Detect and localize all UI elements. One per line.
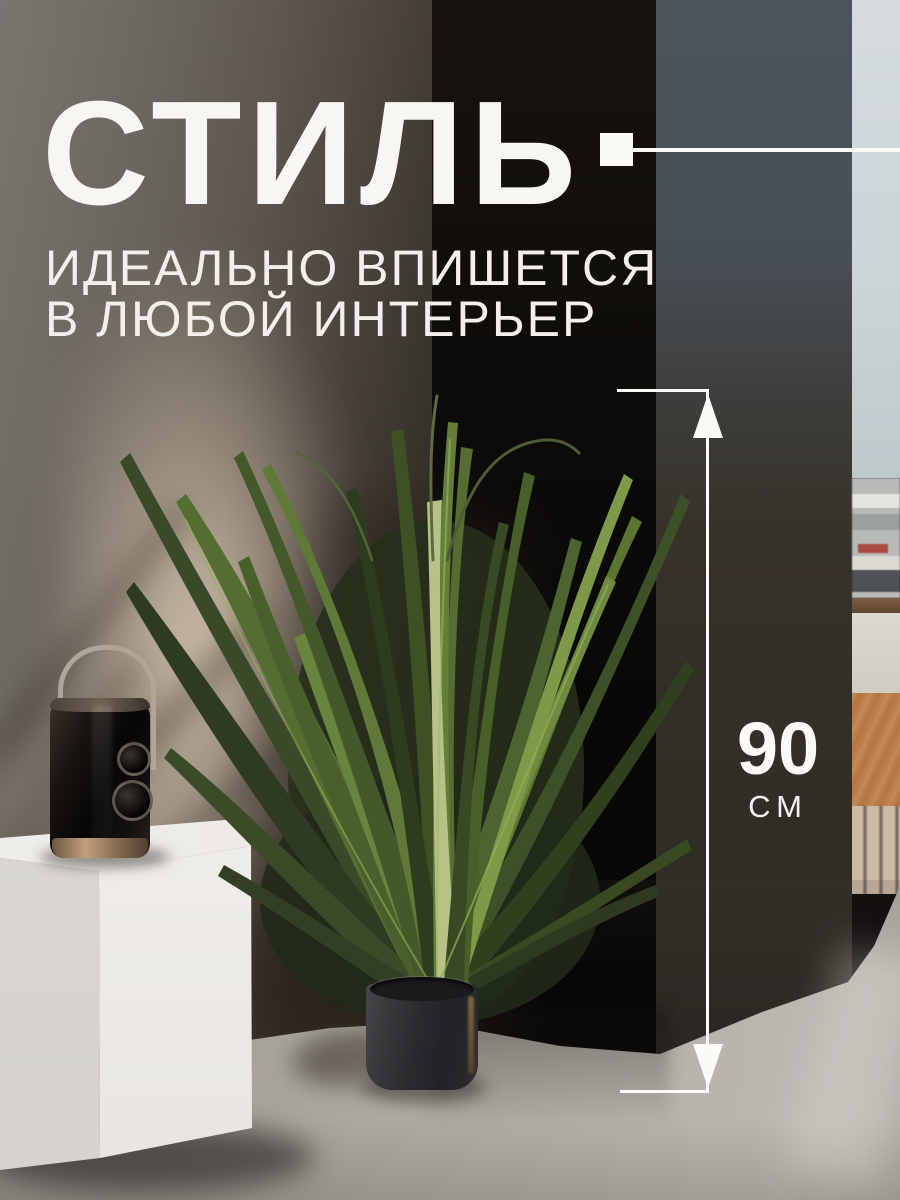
headline-subtitle: ИДЕАЛЬНО ВПИШЕТСЯ В ЛЮБОЙ ИНТЕРЬЕР [45,243,658,345]
dimension-value: 90 [718,712,838,786]
headline-title: СТИЛЬ [42,80,582,228]
headline-subtitle-line-1: ИДЕАЛЬНО ВПИШЕТСЯ [45,243,658,294]
measure-line-top [617,389,709,392]
headline-rule-line [633,148,900,152]
measure-line-bottom [620,1090,709,1093]
measure-line-vertical [706,389,709,1093]
pot-highlight [468,996,474,1074]
dimension-unit: СМ [718,791,838,822]
measure-arrow-up-icon [693,394,723,438]
headline-subtitle-line-2: В ЛЮБОЙ ИНТЕРЬЕР [45,294,658,345]
scene-canvas: СТИЛЬ ИДЕАЛЬНО ВПИШЕТСЯ В ЛЮБОЙ ИНТЕРЬЕР… [0,0,900,1200]
pot-opening [370,977,474,1001]
headline-marker-square [600,133,633,166]
measure-arrow-down-icon [693,1044,723,1088]
